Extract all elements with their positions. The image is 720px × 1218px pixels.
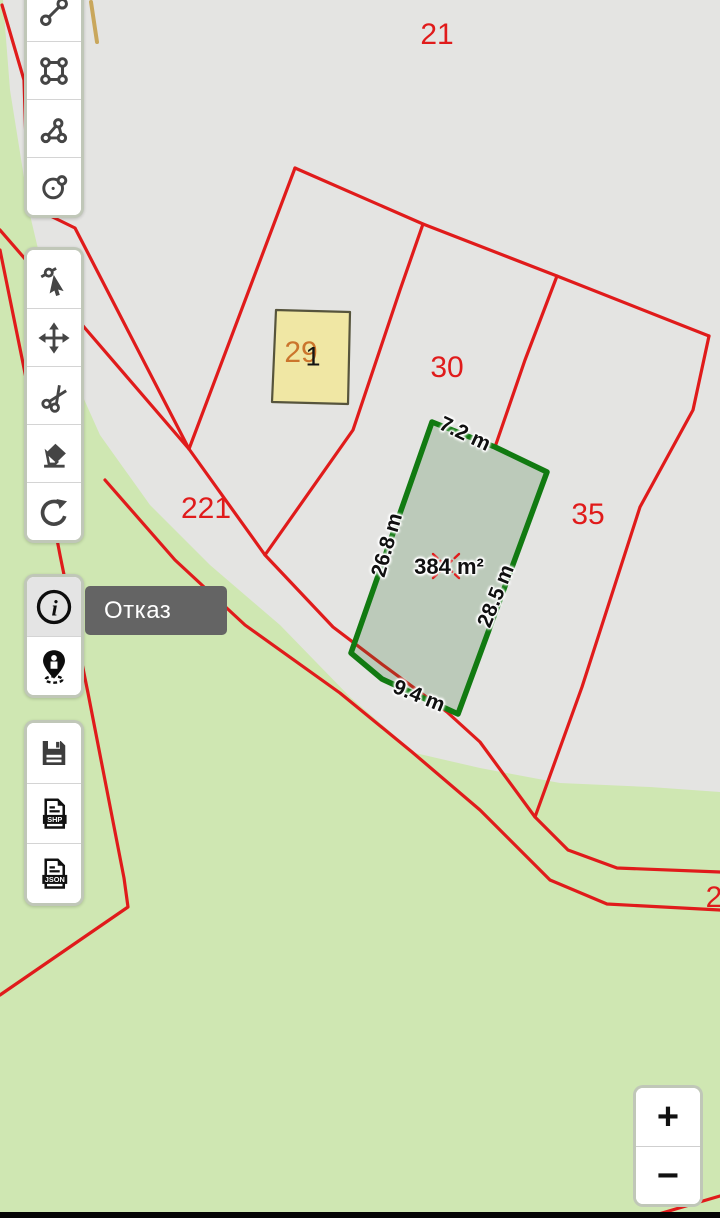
info-icon: i xyxy=(34,587,74,627)
cancel-tooltip[interactable]: Отказ xyxy=(85,586,227,635)
json-file-icon: JSON xyxy=(36,856,72,892)
save-button[interactable] xyxy=(27,723,81,783)
zoom-control: + − xyxy=(633,1085,703,1207)
undo-button[interactable] xyxy=(27,482,81,540)
polygon-tool-button[interactable] xyxy=(27,99,81,157)
cut-button[interactable] xyxy=(27,366,81,424)
line-tool-icon xyxy=(37,0,71,29)
minus-icon: − xyxy=(657,1157,679,1195)
erase-button[interactable] xyxy=(27,424,81,482)
cancel-tooltip-label: Отказ xyxy=(104,597,171,625)
undo-icon xyxy=(37,495,71,529)
line-tool-button[interactable] xyxy=(27,0,81,41)
circle-tool-button[interactable] xyxy=(27,157,81,215)
export-json-button[interactable]: JSON xyxy=(27,843,81,903)
svg-text:i: i xyxy=(52,595,59,620)
rectangle-tool-button[interactable] xyxy=(27,41,81,99)
move-icon xyxy=(37,321,71,355)
person-pin-icon xyxy=(36,648,72,684)
eraser-icon xyxy=(37,437,71,471)
system-navigation-bar xyxy=(0,1212,720,1218)
plus-icon: + xyxy=(657,1098,679,1136)
person-location-button[interactable] xyxy=(27,636,81,695)
draw-toolbar xyxy=(24,0,84,218)
svg-text:SHP: SHP xyxy=(47,814,62,823)
export-toolbar: SHP JSON xyxy=(24,720,84,906)
info-toolbar: i xyxy=(24,574,84,698)
rectangle-tool-icon xyxy=(37,54,71,88)
info-button[interactable]: i xyxy=(27,577,81,636)
polygon-tool-icon xyxy=(37,112,71,146)
zoom-in-button[interactable]: + xyxy=(636,1088,700,1146)
scissors-icon xyxy=(37,379,71,413)
export-shp-button[interactable]: SHP xyxy=(27,783,81,843)
move-button[interactable] xyxy=(27,308,81,366)
circle-tool-icon xyxy=(37,170,71,204)
select-vertex-icon xyxy=(37,262,71,296)
svg-text:JSON: JSON xyxy=(45,874,65,883)
zoom-out-button[interactable]: − xyxy=(636,1146,700,1204)
shp-file-icon: SHP xyxy=(36,796,72,832)
edit-toolbar xyxy=(24,247,84,543)
select-vertex-button[interactable] xyxy=(27,250,81,308)
save-icon xyxy=(36,735,72,771)
